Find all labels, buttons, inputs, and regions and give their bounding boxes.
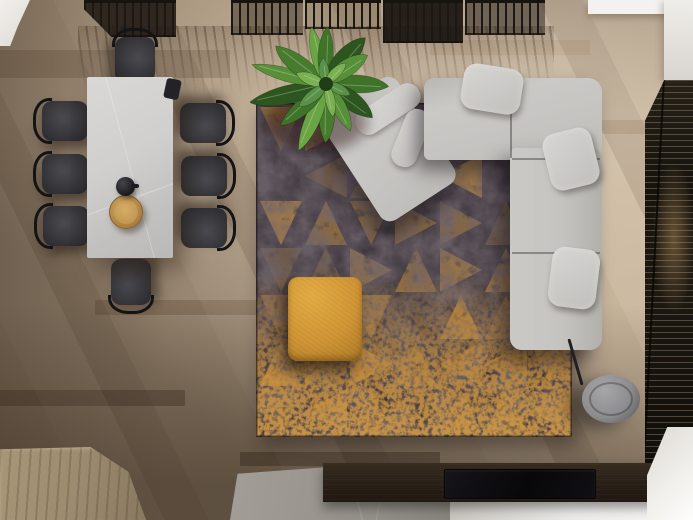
dining-table [87,77,173,258]
white-cabinet-side [664,0,693,80]
slat-partition [465,0,545,35]
dining-chair [111,259,151,305]
dining-chair [181,208,227,248]
sofa-pillow [459,62,525,117]
floor-lamp [582,375,640,423]
plant-center [319,77,333,91]
dining-chair [42,154,88,194]
dining-chair [43,206,89,246]
dining-chair [180,103,226,143]
tv-panel [444,469,596,499]
teapot [116,177,135,196]
sofa-pillow [547,245,602,310]
window-blinds [645,74,693,464]
living-room-render [0,0,693,520]
dining-chair [42,101,88,141]
potted-plant [250,0,402,190]
wooden-tray [109,195,143,229]
ottoman-pouf [288,277,362,361]
dining-chair [181,156,227,196]
